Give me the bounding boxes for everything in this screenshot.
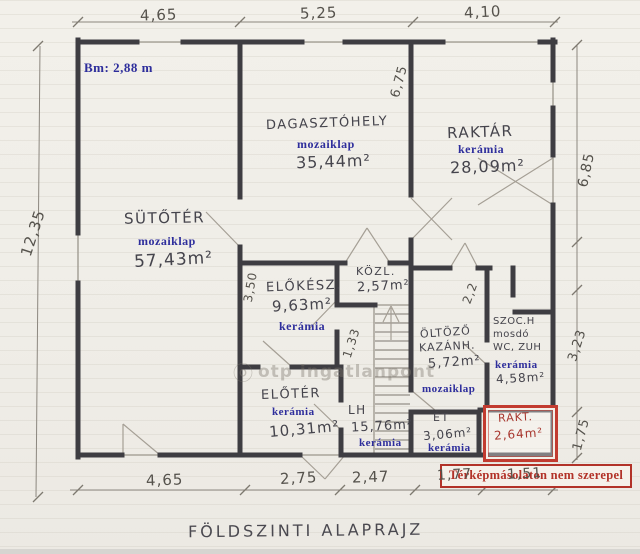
plan-title: FÖLDSZINTI ALAPRAJZ (188, 520, 424, 541)
room-floor-raktar: kerámia (458, 142, 504, 157)
room-area-kozl: 2,57m² (357, 278, 411, 296)
room-floor-lh: kerámia (359, 437, 402, 449)
room-floor-eloter: kerámia (272, 406, 315, 418)
room-name-raktar: RAKTÁR (447, 122, 514, 142)
room-area-szoc: 4,58m² (496, 370, 546, 387)
room-area-raktar: 28,09m² (450, 156, 525, 178)
dim-top-3: 4,10 (464, 2, 502, 22)
otp-watermark-logo-icon: ⓞ (233, 357, 253, 386)
room-name-szoc-3: WC, ZUH (493, 342, 541, 353)
room-name-et: ÉT (433, 411, 450, 424)
dim-top-1: 4,65 (140, 5, 178, 24)
dim-bottom-2: 2,75 (280, 468, 318, 488)
room-area-sutoter: 57,43m² (134, 248, 214, 272)
room-floor-sutoter: mozaiklap (138, 234, 196, 249)
ceiling-height-note: Bm: 2,88 m (84, 60, 153, 76)
room-name-lh: LH (348, 403, 367, 417)
room-floor-elokesz: kerámia (279, 319, 325, 334)
room-name-elokesz: ELŐKÉSZ. (266, 278, 342, 296)
room-area-dagasztohely: 35,44m² (296, 151, 371, 173)
room-floor-szoc: kerámia (495, 359, 538, 371)
dim-bottom-3: 2,47 (352, 467, 390, 486)
floor-plan-page: Bm: 2,88 m SÜTŐTÉR mozaiklap 57,43m² DAG… (0, 0, 640, 554)
dim-bottom-4: 1,77 (437, 466, 473, 484)
room-name-kozl: KÖZL. (356, 265, 396, 278)
room-name-szoc-2: mosdó (493, 329, 529, 340)
room-floor-et: kerámia (428, 442, 471, 454)
watermark: ⓞ otp ingatlanpont (233, 357, 435, 386)
room-name-eloter: ELŐTÉR (261, 386, 321, 403)
room-name-szoc: SZOC.H (493, 316, 535, 327)
room-name-sutoter: SÜTŐTÉR (124, 208, 205, 227)
watermark-text: otp ingatlanpont (258, 362, 435, 382)
dim-bottom-5: 1,51 (507, 465, 543, 483)
room-area-elokesz: 9,63m² (272, 294, 333, 315)
dim-top-2: 5,25 (300, 3, 338, 22)
room-name-rakt: RAKT. (498, 410, 534, 425)
room-floor-dagasztohely: mozaiklap (297, 137, 355, 152)
scan-edge (0, 549, 640, 554)
dim-bottom-1: 4,65 (146, 470, 184, 489)
